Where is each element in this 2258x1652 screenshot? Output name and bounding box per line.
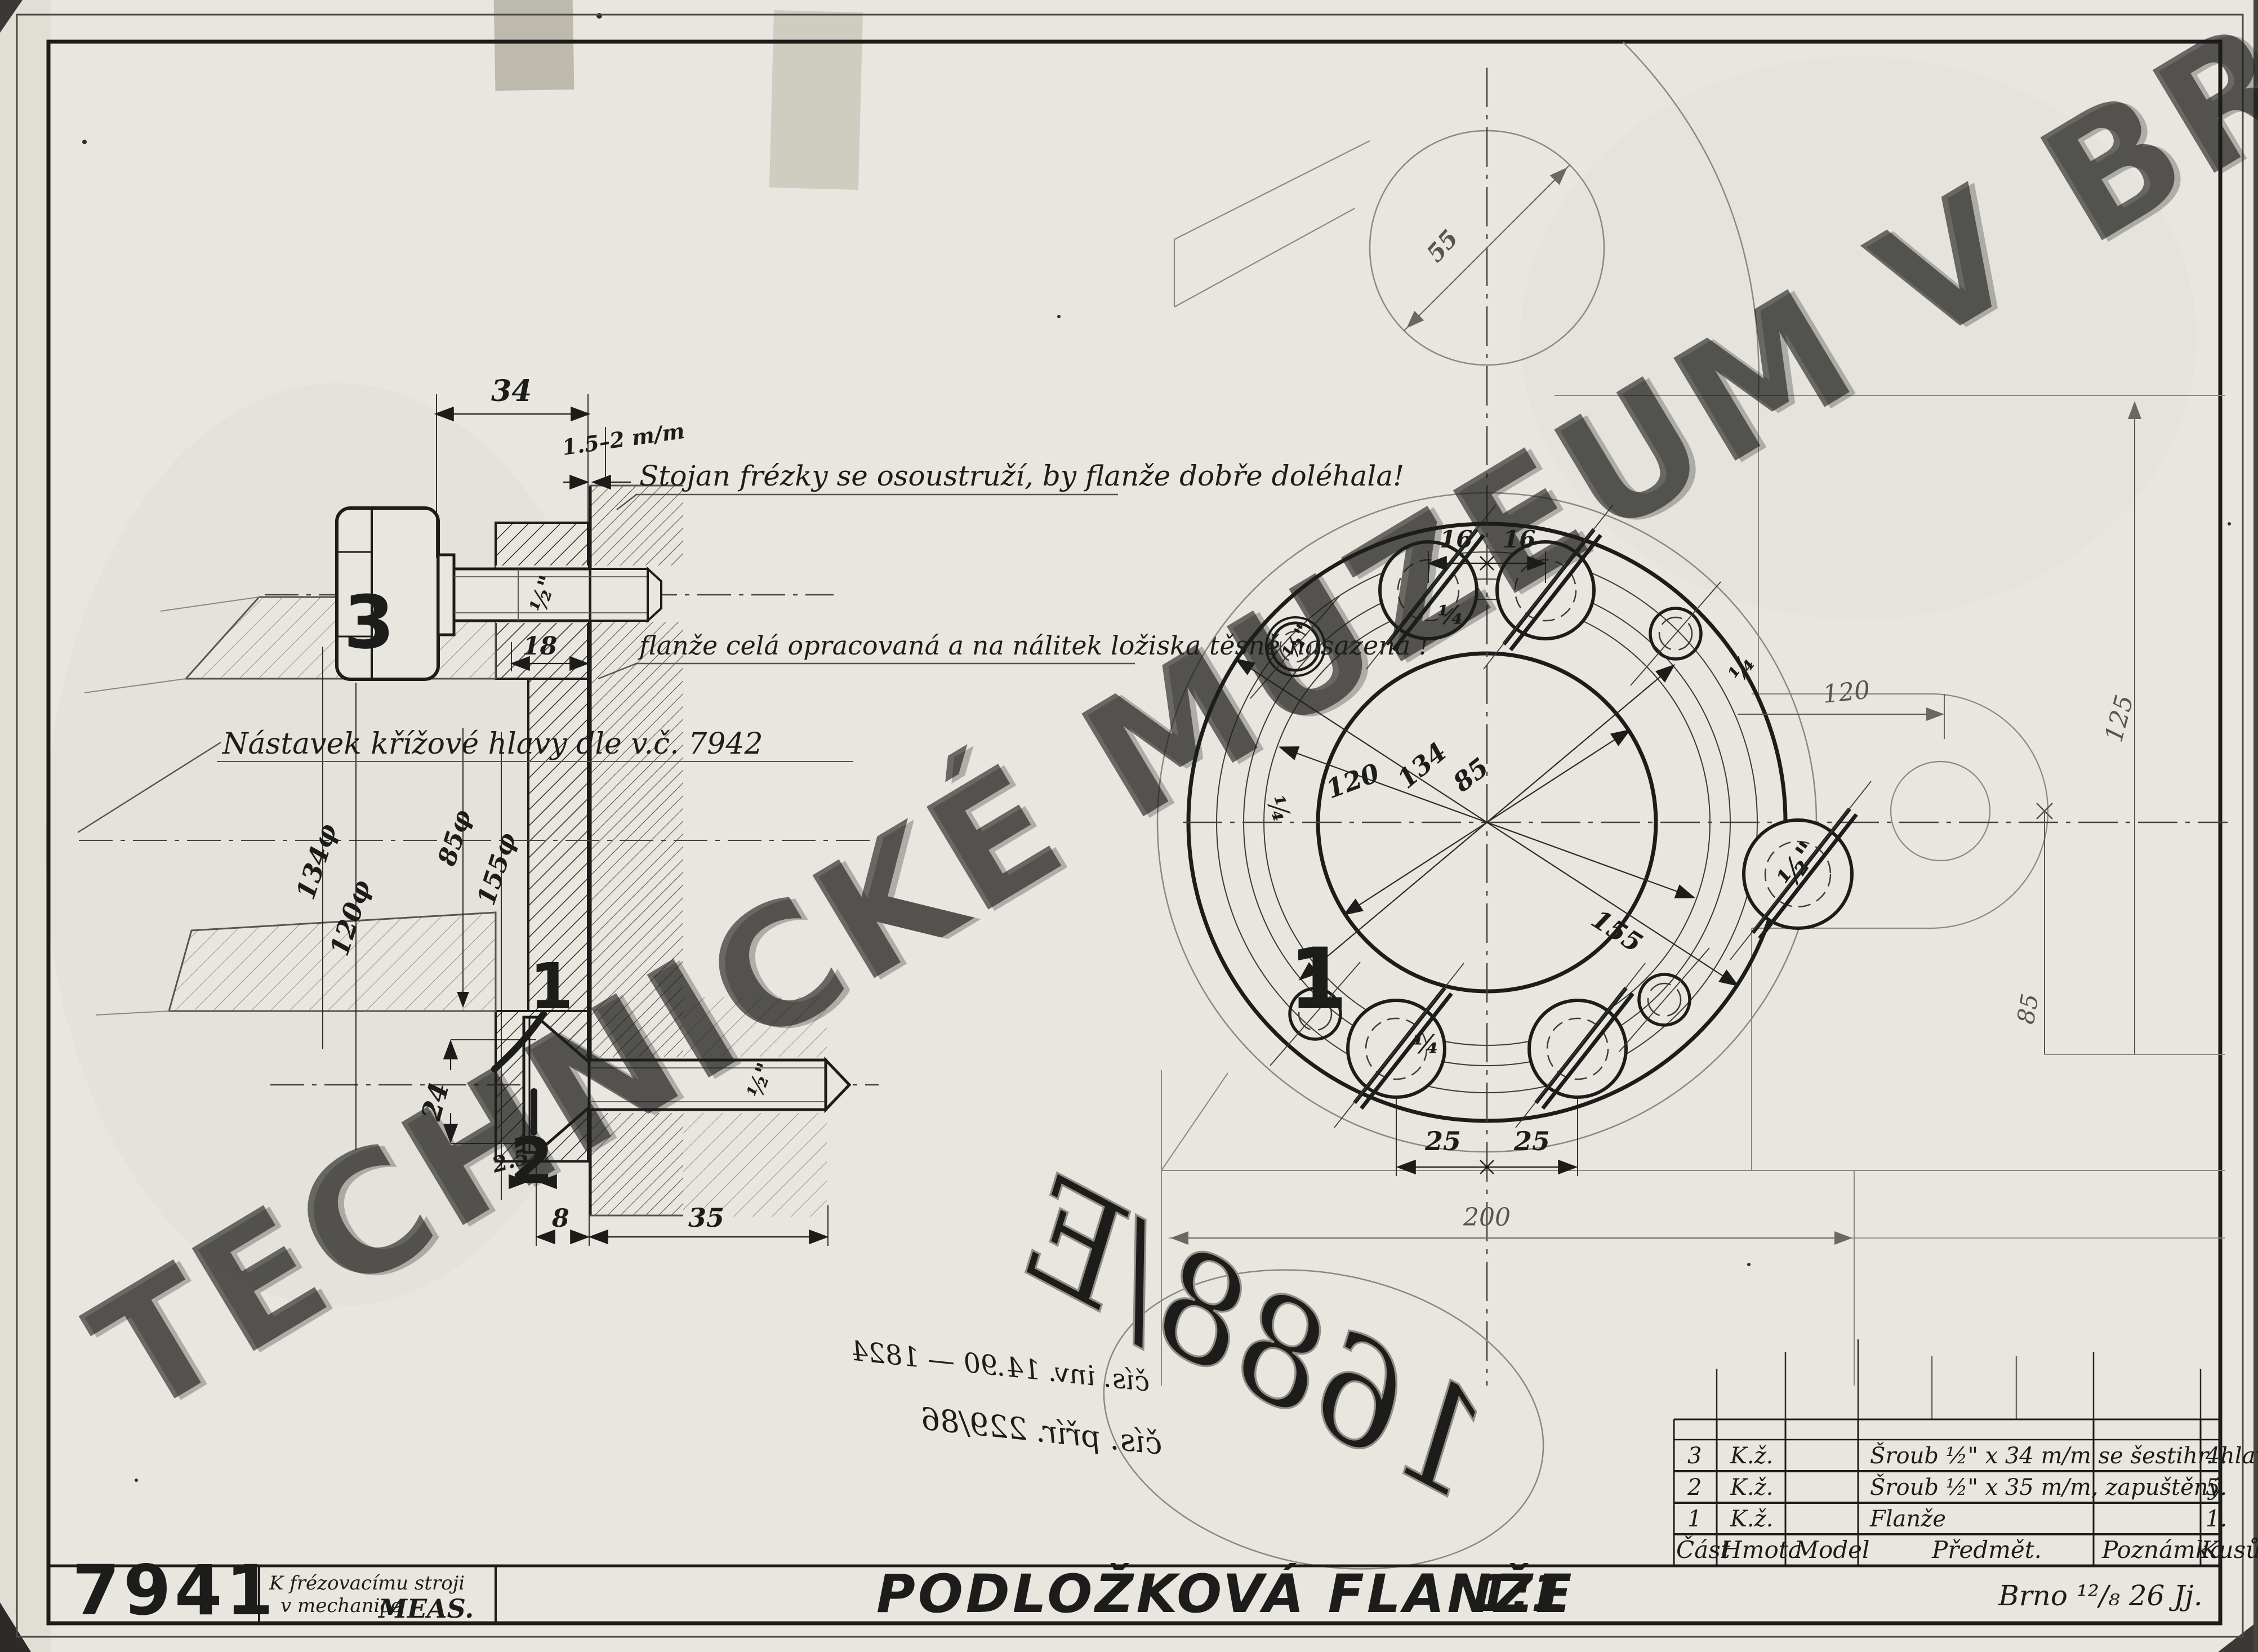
dim-label-200: 200 bbox=[1463, 1203, 1511, 1232]
drawing-title: PODLOŽKOVÁ FLANŽE bbox=[876, 1562, 1575, 1625]
usage-note-line1: K frézovacímu stroji bbox=[269, 1572, 465, 1595]
cell-qty: 4. bbox=[2205, 1443, 2227, 1469]
cell-qty: 1. bbox=[2206, 1506, 2227, 1532]
blueprint-canvas: ½" ½" bbox=[0, 0, 2258, 1652]
dim-label-25-right: 25 bbox=[1513, 1126, 1550, 1156]
usage-note-org: MEAS. bbox=[377, 1593, 474, 1624]
dim-label-18: 18 bbox=[523, 632, 557, 661]
dim-label-25-left: 25 bbox=[1424, 1126, 1461, 1156]
cell-qty: 5. bbox=[2206, 1475, 2227, 1500]
cell-part: 1 bbox=[1687, 1506, 1702, 1532]
dim-label-35: 35 bbox=[688, 1203, 724, 1233]
header-qty: Kusů bbox=[2201, 1536, 2258, 1564]
drawing-number: 7941 bbox=[72, 1551, 277, 1631]
dim-label-34: 34 bbox=[491, 374, 532, 408]
header-subject: Předmět. bbox=[1931, 1536, 2042, 1564]
header-material: Hmota bbox=[1721, 1536, 1802, 1564]
cell-part: 3 bbox=[1687, 1443, 1702, 1469]
parts-table-header: Část Hmota Model Předmět. Poznámka Kusů bbox=[1676, 1535, 2258, 1564]
callout-bolt-3: 3 bbox=[344, 580, 394, 665]
dim-label-85-right: 85 bbox=[2012, 992, 2045, 1026]
tape-artifact bbox=[769, 10, 863, 190]
drawing-scale: 1:1 bbox=[1476, 1564, 1566, 1623]
scan-edge-shade bbox=[0, 0, 51, 1652]
cell-material: K.ž. bbox=[1730, 1475, 1773, 1500]
header-model: Model bbox=[1794, 1536, 1869, 1564]
cell-part: 2 bbox=[1687, 1475, 1702, 1500]
cell-material: K.ž. bbox=[1730, 1443, 1773, 1469]
note-adapter: Nástavek křížové hlavy dle v.č. 7942 bbox=[221, 727, 763, 761]
cell-subject: Šroub ½" x 34 m/m se šestihr. hlavou. bbox=[1870, 1442, 2258, 1469]
place-date: Brno ¹²/₈ 26 Jj. bbox=[1998, 1579, 2203, 1612]
hole-label-quarter-bottom: ¼ bbox=[1413, 1029, 1440, 1059]
cell-material: K.ž. bbox=[1730, 1506, 1773, 1532]
cell-subject: Flanže bbox=[1869, 1506, 1946, 1532]
callout-flange-front-1: 1 bbox=[1289, 930, 1347, 1028]
tape-artifact bbox=[494, 0, 574, 91]
drawing-sheet: ½" ½" bbox=[0, 0, 2258, 1652]
scan-edge bbox=[2253, 0, 2258, 1652]
bolt-washer bbox=[438, 555, 454, 635]
dim-label-120-right: 120 bbox=[1821, 675, 1872, 709]
note-stand: Stojan frézky se osoustruží, by flanže d… bbox=[639, 460, 1404, 492]
cell-subject: Šroub ½" x 35 m/m, zapuštěný bbox=[1870, 1474, 2222, 1500]
